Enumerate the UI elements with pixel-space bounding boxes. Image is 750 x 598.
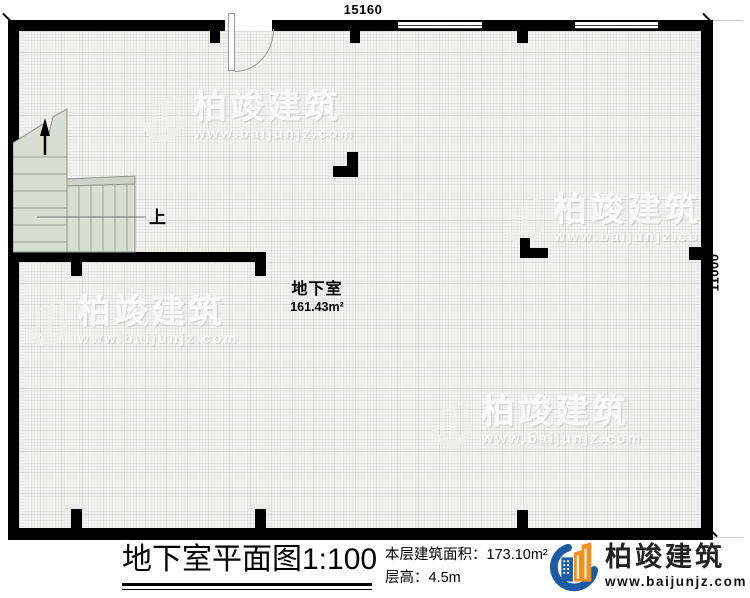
wall-top-segment xyxy=(482,20,575,31)
title-block: 地下室平面图1:100 本层建筑面积：173.10m² 层高：4.5m 柏竣建筑… xyxy=(0,540,750,598)
stair-up-label: 上 xyxy=(149,203,166,228)
wall-pier xyxy=(210,30,220,43)
dimension-extension-line xyxy=(713,20,743,21)
window xyxy=(398,20,482,31)
wall-pier xyxy=(517,510,528,528)
wall-pier xyxy=(255,262,266,276)
plan-title: 地下室平面图1:100 xyxy=(122,543,374,577)
wall-corner-stub xyxy=(520,248,548,258)
wall-top-segment xyxy=(8,20,225,31)
wall-stub-right xyxy=(689,247,701,260)
floor-height-label: 层高： xyxy=(385,570,429,586)
floor-area-value: 173.10m² xyxy=(487,547,548,563)
plan-scale: 1:100 xyxy=(302,543,377,576)
company-logo: 柏竣建筑 www.baijunjz.com xyxy=(543,540,747,596)
wall-pier xyxy=(350,30,360,43)
wall-pier xyxy=(71,509,82,528)
company-logo-brand: 柏竣建筑 xyxy=(605,540,747,574)
room-label: 地下室 161.43m² xyxy=(252,275,382,314)
wall-corner-stub xyxy=(347,152,358,177)
room-area: 161.43m² xyxy=(252,300,382,314)
wall-pier xyxy=(71,262,82,276)
floor-area-label: 本层建筑面积： xyxy=(385,547,487,563)
wall-pier xyxy=(517,30,528,43)
basement-floorplan: 柏竣建筑 www.baijunjz.com 柏竣建筑 www.baijunjz.… xyxy=(0,0,750,540)
dimension-extension-line xyxy=(713,537,743,538)
door-leaf xyxy=(228,13,235,71)
staircase xyxy=(13,105,153,255)
dimension-top: 15160 xyxy=(318,2,408,17)
plan-info: 本层建筑面积：173.10m² 层高：4.5m xyxy=(385,544,548,590)
floor-height-row: 层高：4.5m xyxy=(385,567,548,590)
plan-title-text: 地下室平面图 xyxy=(122,543,302,576)
floor-area-row: 本层建筑面积：173.10m² xyxy=(385,544,548,567)
dimension-right: 11000 xyxy=(707,238,722,308)
floor-height-value: 4.5m xyxy=(429,570,461,586)
wall-top-segment xyxy=(272,20,398,31)
company-logo-icon xyxy=(543,540,601,596)
wall-bottom xyxy=(8,528,713,540)
company-logo-url: www.baijunjz.com xyxy=(605,574,747,589)
title-underline xyxy=(122,583,372,586)
wall-pier xyxy=(255,509,266,528)
wall-left xyxy=(8,20,19,540)
title-underline xyxy=(122,589,372,590)
window xyxy=(575,20,658,31)
room-name: 地下室 xyxy=(252,275,382,299)
